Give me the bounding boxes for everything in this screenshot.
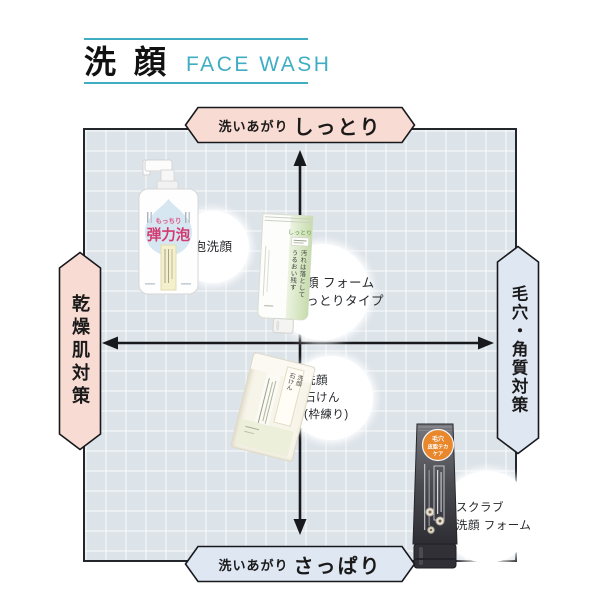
axis-label-right: 毛穴・角質対策 <box>496 245 540 455</box>
product-foam-wash-bottle: もっちり 弾力泡 <box>132 155 204 297</box>
page-title: 洗顔 <box>84 44 184 80</box>
face-wash-positioning-map: 洗顔 FACE WASH 泡洗顔 洗顔 フォーム しっとりタイプ 洗顔 石けん … <box>0 0 600 600</box>
axis-label-top: 洗いあがり しっとり <box>184 106 416 144</box>
bottle-tagline-small: もっちり <box>156 216 182 225</box>
foam-bottle-art: もっちり 弾力泡 <box>132 155 204 297</box>
product-soap-bar: 洗顔 石けん <box>228 350 318 466</box>
scrub-badge-line2: 皮脂テカ <box>427 443 449 451</box>
soap-package: 洗顔 石けん <box>230 352 316 463</box>
scrub-badge-line3: ケア <box>433 451 443 458</box>
page-subtitle: FACE WASH <box>186 50 331 80</box>
axis-bottom-label: さっぱり <box>294 550 382 579</box>
axis-bottom-prefix: 洗いあがり <box>218 555 288 574</box>
header-rule-top <box>84 38 308 40</box>
axis-top-prefix: 洗いあがり <box>218 116 288 135</box>
header-rule-bottom <box>84 82 308 84</box>
page-header: 洗顔 FACE WASH <box>84 42 331 80</box>
tube-type-label: しっとり <box>288 229 312 237</box>
bottle-tagline-big: 弾力泡 <box>147 226 191 244</box>
product-moist-foam-tube: しっとり 汚れは落として うるおい残す <box>249 203 326 340</box>
axis-label-bottom: 洗いあがり さっぱり <box>184 545 416 583</box>
axis-top-label: しっとり <box>294 111 382 140</box>
soap-label-text: 洗顔 石けん <box>276 372 304 424</box>
tube-copy-text: 汚れは落として うるおい残す <box>286 249 307 310</box>
axis-left-label: 乾燥肌対策 <box>58 251 102 451</box>
axis-right-label: 毛穴・角質対策 <box>496 245 540 455</box>
axis-label-left: 乾燥肌対策 <box>58 251 102 451</box>
scrub-badge-line1: 毛穴 <box>432 435 444 443</box>
soap-wrap-fold <box>251 353 315 384</box>
